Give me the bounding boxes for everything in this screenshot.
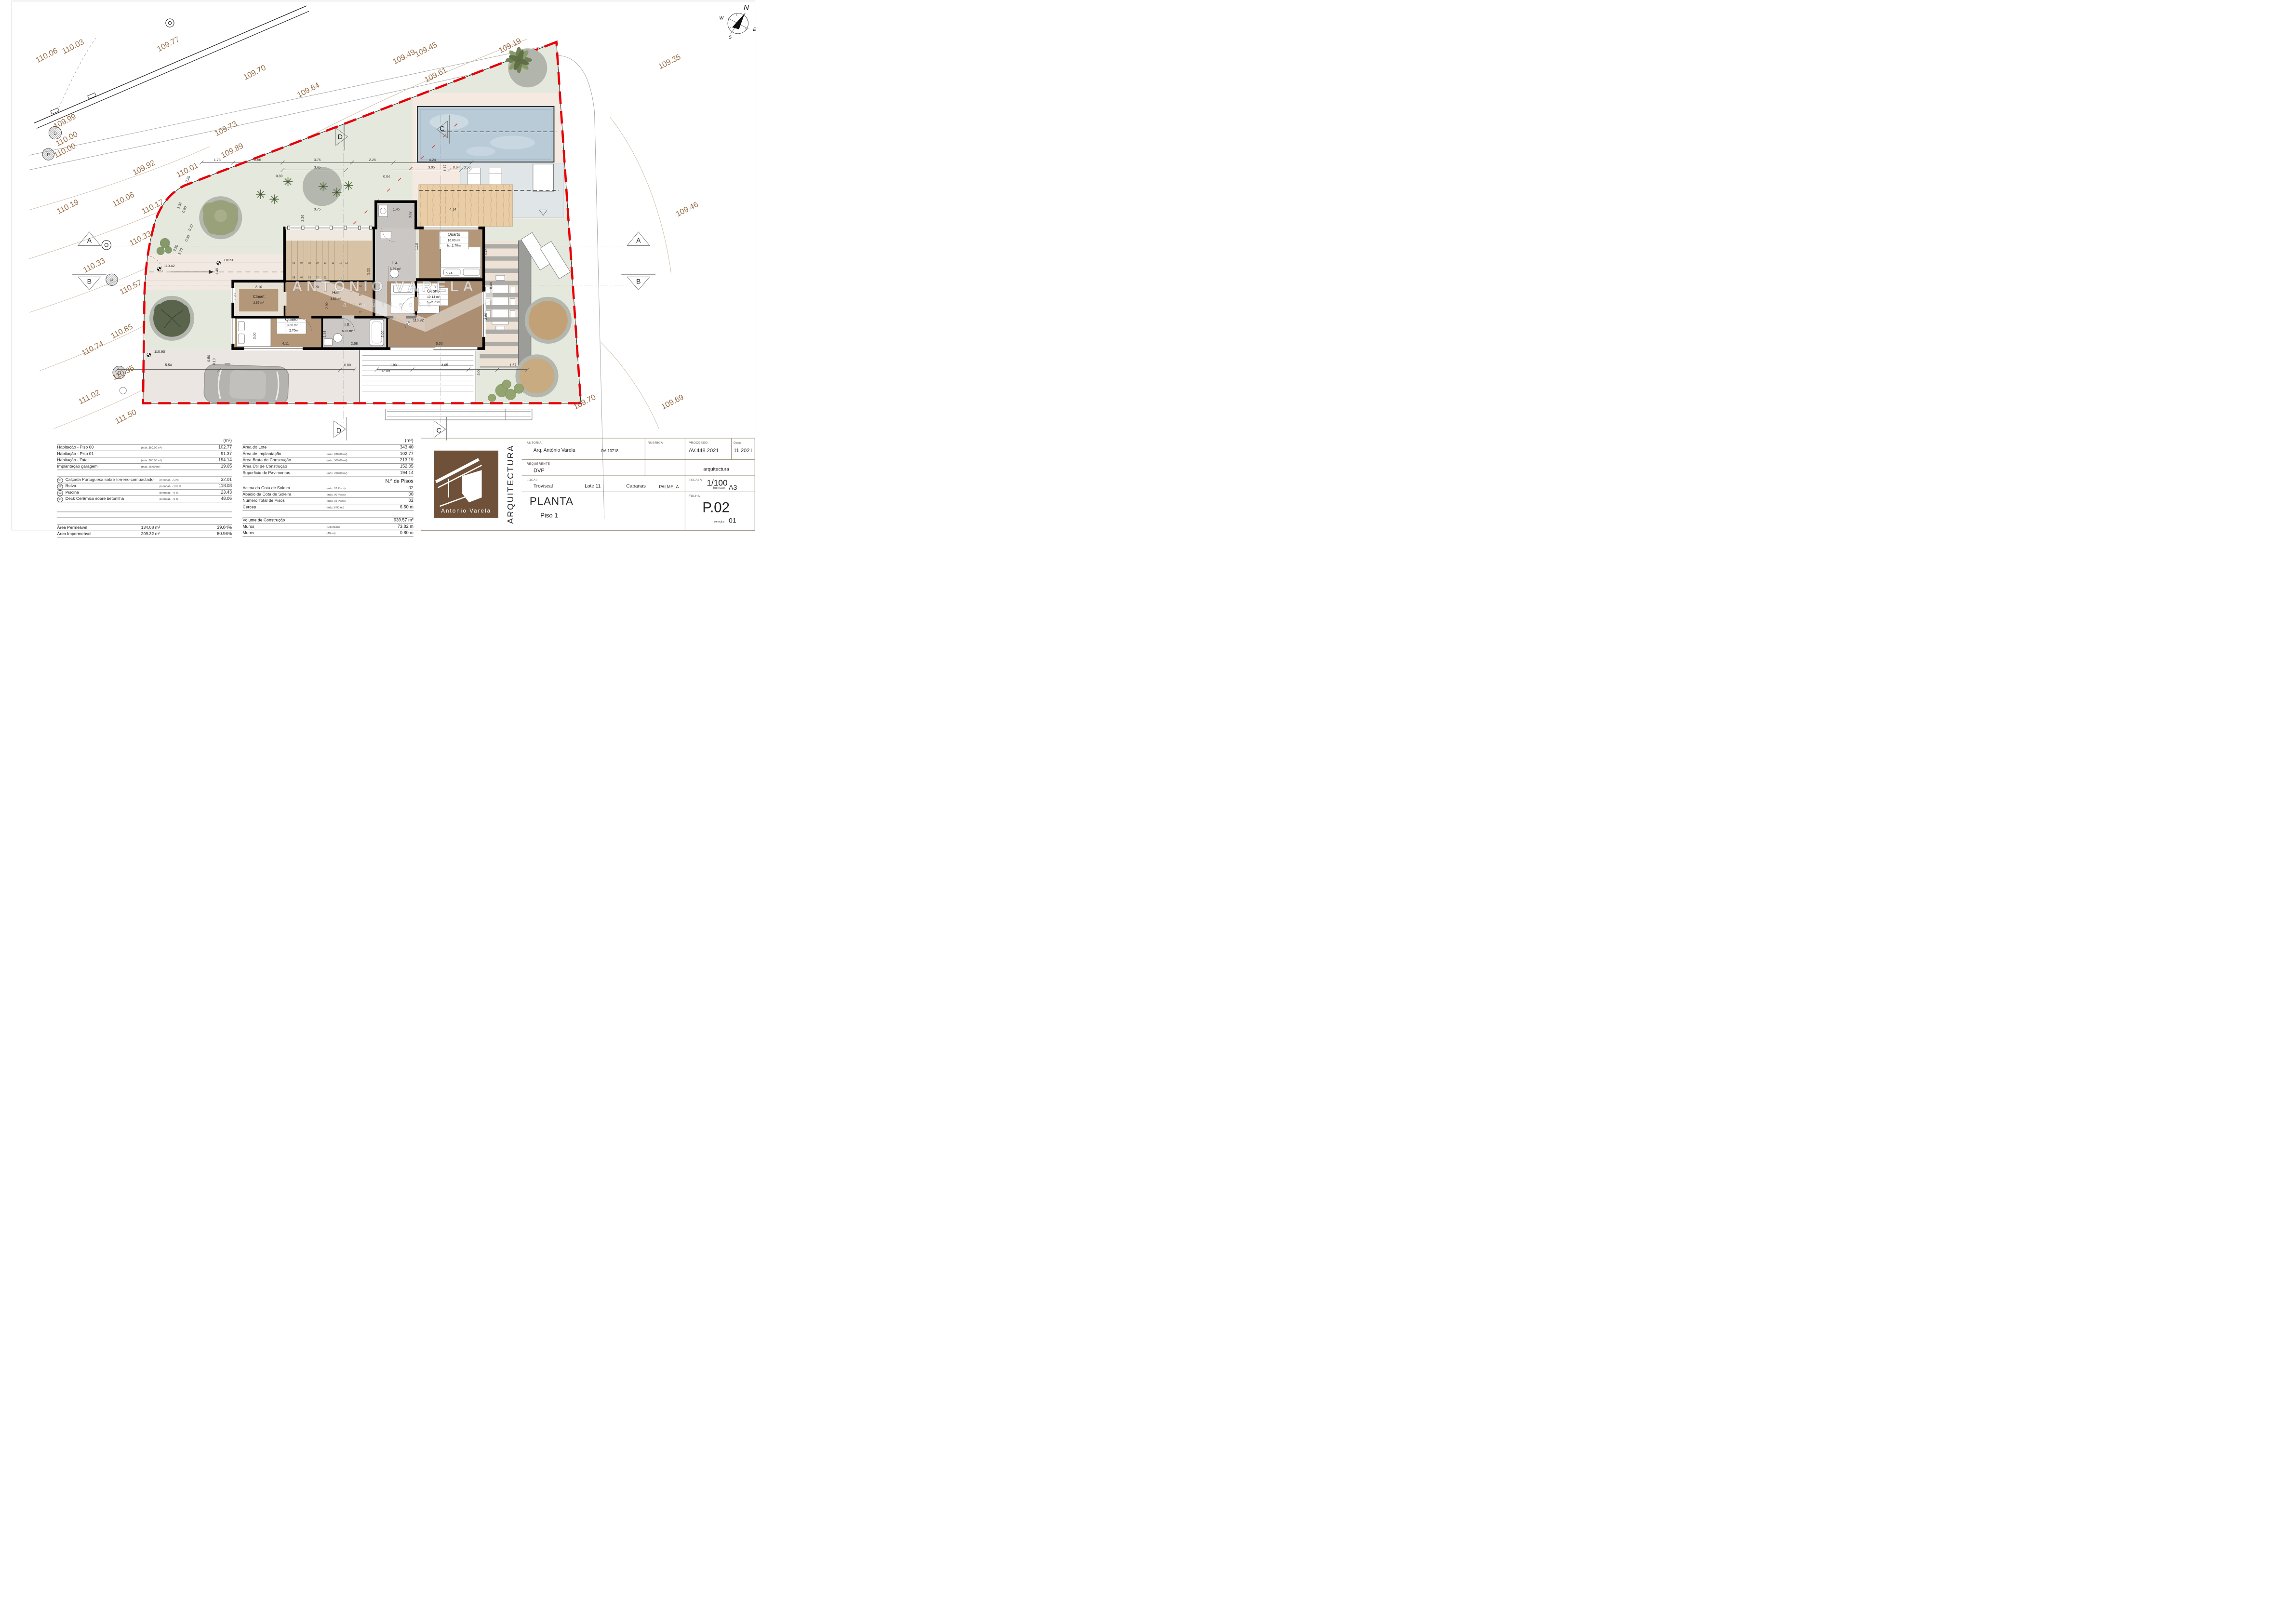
table-row: Área Bruta de Construção(máx. 305.00 m²)… bbox=[242, 457, 413, 464]
drawing-sheet: 110.03110.06109.77109.70109.64109.73109.… bbox=[0, 0, 765, 532]
drawing-title: PLANTA bbox=[530, 495, 574, 508]
stair-numbers-label: 13 bbox=[345, 262, 348, 265]
table-row: Volume de Construção639.57 m³ bbox=[242, 518, 413, 524]
room-areas-label: 13.00 m² bbox=[285, 324, 298, 327]
dimensions-label: 1.57 bbox=[509, 363, 516, 367]
dimensions-label: 3.05 bbox=[441, 363, 448, 367]
dimensions-label: 1.91 bbox=[322, 331, 327, 337]
local-cabanas: Cabanas bbox=[626, 484, 646, 489]
escala-label: ESCALA bbox=[689, 478, 702, 482]
bed bbox=[237, 318, 271, 347]
spot-levels-label: 110.90 bbox=[224, 258, 234, 262]
section-markers-label: A bbox=[87, 237, 92, 244]
stair-numbers-label: 06 bbox=[293, 262, 295, 265]
room-areas-label: 5.15 m² bbox=[342, 330, 353, 333]
table-row: 01Calçada Portuguesa sobre terreno compa… bbox=[57, 477, 232, 483]
rubrica-label: RUBRICA bbox=[648, 442, 663, 445]
room-areas-label: 19.14 m² bbox=[427, 295, 440, 299]
compass-dirs-label: W bbox=[720, 16, 724, 21]
dimensions-label: 2.06 bbox=[380, 331, 385, 337]
local-palmela: PALMELA bbox=[659, 484, 679, 489]
dimensions-label: 1.73 bbox=[214, 158, 221, 162]
room-areas-label: 3.57 m² bbox=[253, 301, 264, 305]
unit-header: (m²) bbox=[57, 438, 232, 444]
table-row: Implantação garagem(máx. 25.00 m²)19.05 bbox=[57, 464, 232, 470]
stair-numbers-label: 09 bbox=[316, 262, 319, 265]
requerente-label: REQUERENTE bbox=[527, 462, 550, 466]
oa-number: OA.13718 bbox=[601, 449, 618, 453]
watermark-sub-label: a r q u i t e c t o bbox=[343, 301, 433, 308]
dimensions-label: 8.00 bbox=[489, 282, 493, 289]
pisos-header: N.º de Pisos bbox=[242, 478, 413, 485]
room-areas-label: h.=2.70m bbox=[285, 329, 298, 333]
section-markers-label: B bbox=[636, 278, 641, 285]
utility-symbols-label: P bbox=[110, 278, 113, 282]
dimensions-label: 1.17 bbox=[443, 164, 447, 171]
dimensions-label: 5.54 bbox=[165, 363, 172, 367]
dimensions-label: 3.45 bbox=[484, 248, 488, 255]
table-row: Acima da Cota de Soleira(máx. 02 Pisos)0… bbox=[242, 485, 413, 492]
manhole-icon bbox=[102, 241, 111, 250]
dimensions-label: 1.10 bbox=[414, 243, 419, 250]
watermark-name-label: ANTÓNIO VARELA bbox=[292, 279, 478, 295]
section-markers-label: D bbox=[336, 427, 341, 434]
dimensions-label: 1.70 bbox=[233, 294, 237, 300]
formato-value: A3 bbox=[729, 483, 737, 491]
entry-steps bbox=[386, 409, 532, 420]
toilet bbox=[324, 339, 332, 345]
dimensions-label: 3.00 bbox=[253, 333, 257, 339]
closet-rug bbox=[239, 289, 278, 312]
table-row: Superficie de Pavimentos(máx. 280.00 m²)… bbox=[242, 470, 413, 476]
dimensions-label: 3.00 bbox=[477, 369, 481, 376]
utility-symbols-label: D bbox=[53, 131, 57, 136]
table-row: Abaixo da Cota de Soleira(máx. 00 Pisos)… bbox=[242, 492, 413, 498]
compass-north-label: N bbox=[744, 3, 749, 12]
autoria-label: AUTORIA bbox=[527, 442, 542, 445]
table-row: Número Total de Pisos(máx. 02 Pisos)02 bbox=[242, 498, 413, 504]
dimensions-label: 4.24 bbox=[429, 158, 436, 162]
discipline-value: arquitectura bbox=[703, 467, 729, 472]
table-row: Área Permeável134.08 m²39.04% bbox=[57, 525, 232, 531]
dimensions-label: 3.75 bbox=[314, 158, 320, 162]
table-row: Habitação - Total(máx. 280.00 m²)194.14 bbox=[57, 457, 232, 464]
stair-numbers-label: 08 bbox=[308, 262, 311, 265]
dimensions-label: 2.66 bbox=[254, 158, 261, 162]
dimensions-label: 5.00 bbox=[436, 341, 442, 346]
dimensions-label: 0.10 bbox=[212, 358, 216, 365]
room-names-label: Closet bbox=[253, 294, 265, 299]
section-markers-label: D bbox=[338, 134, 343, 141]
table-row: 03Piscinapermeab. - 0 %23.43 bbox=[57, 490, 232, 496]
spot-levels-label: 113.92 bbox=[413, 318, 424, 322]
dimensions-label: 0.30 bbox=[276, 174, 282, 178]
dimensions-label: 0.80 bbox=[344, 363, 351, 367]
logo-name: Antonio Varela bbox=[434, 508, 498, 514]
dimensions-label: 3.45 bbox=[314, 165, 320, 169]
autoria-value: Arq. António Varela bbox=[534, 448, 575, 453]
terrace bbox=[285, 228, 372, 241]
dimensions-label: 0.04 bbox=[383, 174, 390, 179]
pergola bbox=[480, 241, 531, 367]
table-row: Habitação - Piso 0191.37 bbox=[57, 451, 232, 457]
requerente-value: DVP bbox=[534, 468, 545, 473]
stair-numbers-label: 10 bbox=[324, 262, 327, 265]
room-areas-label: 3.53 m² bbox=[330, 297, 341, 301]
utility-symbols-label: P bbox=[47, 152, 50, 157]
room-names-label: I.S. bbox=[345, 322, 351, 327]
dimensions-label: 2.92 bbox=[325, 302, 329, 309]
processo-label: PROCESSO bbox=[689, 442, 708, 445]
room-areas-label: 16.00 m² bbox=[448, 239, 461, 242]
dimensions-label: 2.22 bbox=[366, 268, 371, 275]
section-markers-label: B bbox=[87, 278, 92, 285]
title-block: Antonio Varela ARQUITECTURA AUTORIA Arq.… bbox=[421, 438, 755, 530]
dimensions-label: 4.14 bbox=[450, 207, 456, 211]
dimensions-label: 12.89 bbox=[381, 369, 390, 373]
data-value: 11.2021 bbox=[734, 448, 752, 454]
versao-label: versão bbox=[714, 521, 725, 524]
areas-table-lote: (m²)Área do Lote343.40Área de Implantaçã… bbox=[242, 438, 413, 537]
room-names-label: Quarto bbox=[448, 232, 460, 237]
room-names-label: I.S. bbox=[392, 260, 399, 265]
manhole-icon bbox=[166, 19, 174, 27]
table-row: Área de Implantação(máx. 280.00 m²)102.7… bbox=[242, 451, 413, 457]
compass-dirs-label: S bbox=[729, 35, 732, 40]
table-row: Muros(Extensão)73.82 m bbox=[242, 524, 413, 530]
table-row: Habitação - Piso 00(máx. 280.00 m²)102.7… bbox=[57, 445, 232, 451]
spot-levels-label: 110.90 bbox=[154, 349, 165, 354]
local-lote: Lote 11 bbox=[585, 484, 601, 489]
drawing-subtitle: Piso 1 bbox=[540, 511, 558, 519]
dimensions-label: 0.64 bbox=[453, 165, 460, 169]
car bbox=[203, 362, 289, 407]
dimensions-label: 3.75 bbox=[314, 207, 320, 211]
section-markers-label: C bbox=[436, 427, 441, 434]
room-areas-label: 5.56 m² bbox=[390, 268, 401, 271]
section-markers-label: A bbox=[636, 237, 641, 244]
table-row: 02Relvapermeab. - 100 %118.08 bbox=[57, 483, 232, 490]
local-label: LOCAL bbox=[527, 478, 538, 482]
dimensions-label: 4.11 bbox=[282, 341, 289, 346]
toilet bbox=[380, 231, 391, 239]
table-row: Cércea(máx. 6.50 m )6.50 m bbox=[242, 504, 413, 510]
stair-numbers-label: 12 bbox=[339, 262, 342, 265]
table-row: Muros(Altura)0.80 m bbox=[242, 530, 413, 537]
dimensions-label: 1.93 bbox=[390, 363, 397, 367]
stair-numbers-label: 07 bbox=[300, 262, 303, 265]
table-row: Área Útil de Construção152.05 bbox=[242, 464, 413, 470]
versao-value: 01 bbox=[729, 516, 736, 524]
dimensions-label: 5.74 bbox=[446, 271, 453, 275]
pool-equipment bbox=[533, 164, 554, 191]
room-names-label: Quarto bbox=[285, 317, 298, 322]
stair-numbers-label: 11 bbox=[332, 262, 334, 265]
dimensions-label: 0.50 bbox=[464, 165, 470, 169]
folha-label: FOLHA bbox=[689, 495, 700, 498]
dimensions-label: 0.50 bbox=[206, 355, 211, 362]
stair-numbers-label: 17 bbox=[359, 311, 362, 314]
room-areas-label: h.=2.70m bbox=[447, 244, 461, 247]
dimensions-label: 2.25 bbox=[369, 158, 376, 162]
discipline-vertical: ARQUITECTURA bbox=[499, 438, 522, 530]
dimensions-label: 1.40 bbox=[215, 268, 219, 275]
local-troviscal: Troviscal bbox=[534, 484, 553, 489]
table-row: Área Impermeável209.32 m²60.96% bbox=[57, 531, 232, 537]
utility-symbols-label: D bbox=[118, 371, 121, 376]
dimensions-label: 2.10 bbox=[255, 285, 262, 289]
formato-label: formato bbox=[713, 486, 725, 490]
dimensions-label: 3.60 bbox=[484, 313, 488, 320]
section-markers-label: C bbox=[440, 125, 444, 133]
dimensions-label: 2.68 bbox=[351, 341, 358, 346]
dimensions-label: 1.45 bbox=[393, 207, 400, 211]
dimensions-label: 3.62 bbox=[408, 212, 413, 218]
sheet-number: P.02 bbox=[702, 500, 730, 516]
dimensions-label: 2.20 bbox=[300, 215, 305, 222]
areas-table-habitacao: (m²)Habitação - Piso 00(máx. 280.00 m²)1… bbox=[57, 438, 232, 537]
spot-levels-label: 110.42 bbox=[164, 264, 174, 268]
dimensions-label: 3.05 bbox=[428, 165, 435, 169]
table-row: 04Deck Cerâmico sobre betonilhapermeab. … bbox=[57, 496, 232, 502]
architect-logo: Antonio Varela bbox=[434, 451, 498, 518]
shower bbox=[334, 334, 342, 342]
data-label: Data bbox=[734, 442, 741, 445]
table-row: Área do Lote343.40 bbox=[242, 445, 413, 451]
compass-dirs-label: E bbox=[753, 27, 757, 32]
processo-value: AV.448.2021 bbox=[689, 448, 719, 454]
